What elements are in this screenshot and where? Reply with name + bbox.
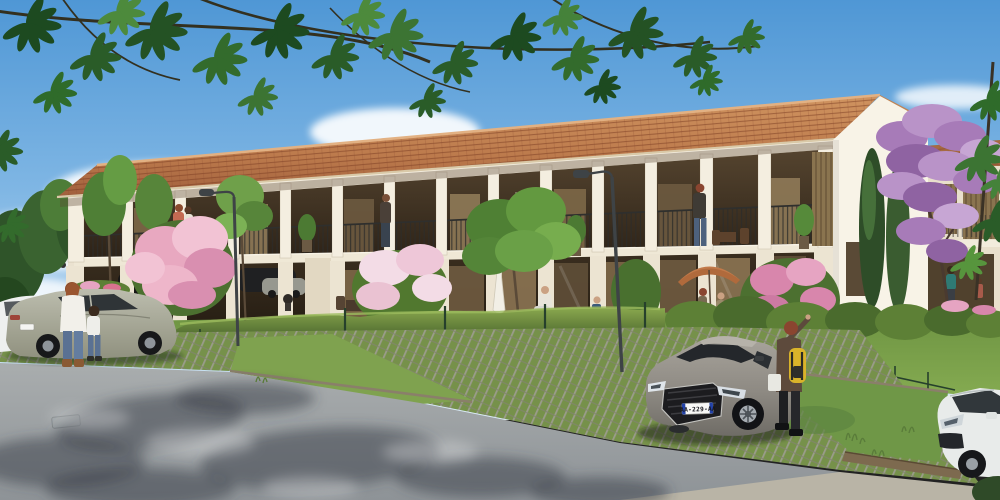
license-plate-text: AA-229-AA xyxy=(680,406,716,414)
license-plate: AA-229-AA xyxy=(680,402,716,414)
facade-wood-panel xyxy=(812,152,833,246)
architectural-render-image: AA-229-AA xyxy=(0,0,1000,500)
